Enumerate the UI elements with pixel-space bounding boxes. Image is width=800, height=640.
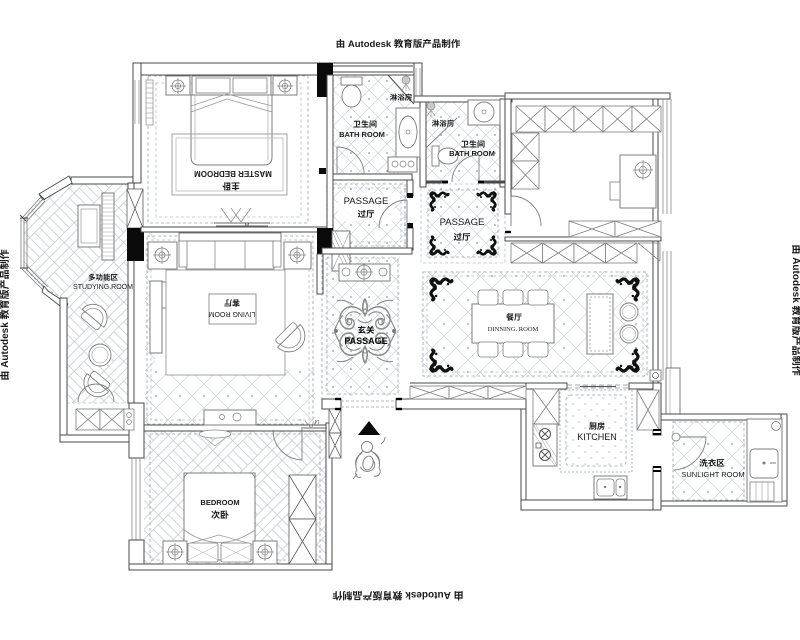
svg-text:PASSAGE: PASSAGE [344,336,387,346]
svg-text:SUNLIGHT ROOM: SUNLIGHT ROOM [681,470,744,479]
svg-text:LI: LI [314,418,319,424]
svg-text:Autodesk: Autodesk [405,589,451,600]
svg-text:STUDYING.ROOM: STUDYING.ROOM [73,284,133,291]
svg-text:MASTER BEDROOM: MASTER BEDROOM [194,169,272,178]
svg-text:BATH ROOM: BATH ROOM [449,149,495,158]
svg-text:BEDROOM: BEDROOM [200,498,239,507]
svg-text:BATH ROOM: BATH ROOM [339,130,385,139]
svg-text:Autodesk: Autodesk [790,257,800,303]
svg-text:M: M [245,223,250,229]
svg-text:KITCHEN: KITCHEN [577,432,617,442]
svg-text:LIVING ROOM: LIVING ROOM [209,310,256,317]
svg-text:Autodesk: Autodesk [0,322,11,368]
svg-text:PASSAGE: PASSAGE [440,217,485,228]
svg-text:Autodesk: Autodesk [348,39,392,50]
svg-text:PASSAGE: PASSAGE [344,196,389,207]
svg-text:DINNING. ROOM: DINNING. ROOM [488,326,539,333]
